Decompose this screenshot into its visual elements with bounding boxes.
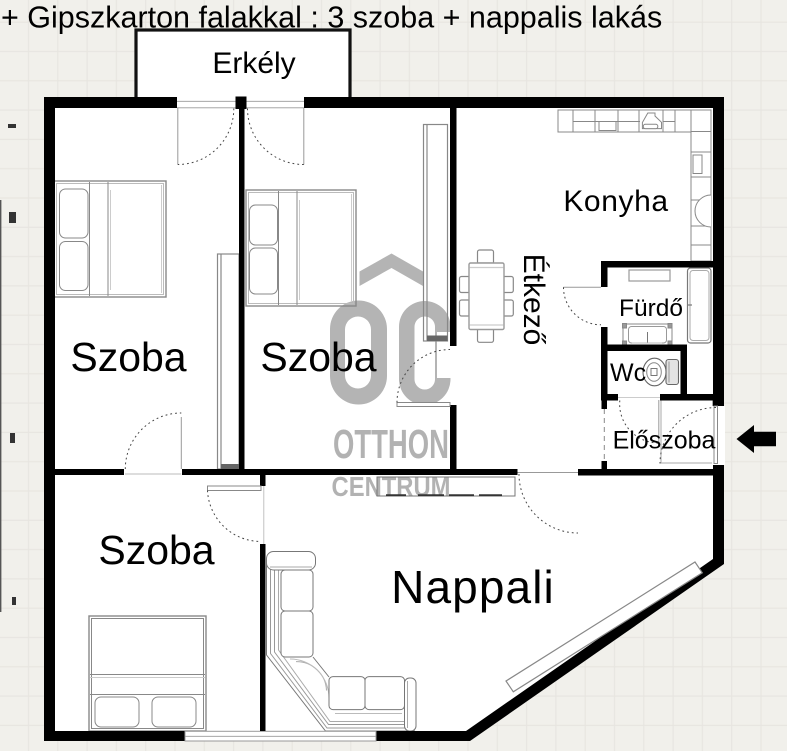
- svg-text:Étkező: Étkező: [517, 254, 550, 346]
- svg-text:Szoba: Szoba: [98, 527, 214, 573]
- svg-text:Konyha: Konyha: [563, 185, 668, 218]
- svg-text:Nappali: Nappali: [391, 561, 555, 613]
- svg-text:Erkély: Erkély: [212, 47, 295, 80]
- svg-text:Wc: Wc: [610, 359, 646, 387]
- svg-text:Fürdő: Fürdő: [619, 295, 683, 322]
- svg-text:OTTHON: OTTHON: [333, 422, 449, 468]
- svg-text:Előszoba: Előszoba: [613, 427, 716, 455]
- svg-text:Szoba: Szoba: [70, 334, 186, 380]
- svg-text:Szoba: Szoba: [260, 334, 376, 380]
